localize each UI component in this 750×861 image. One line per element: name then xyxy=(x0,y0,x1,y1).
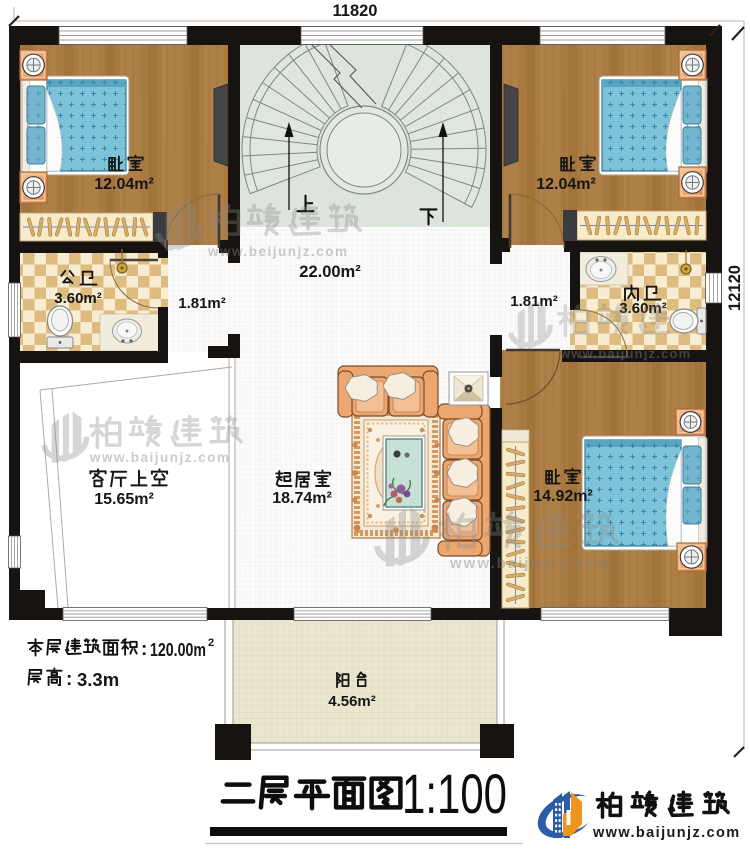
svg-text:1.81m²: 1.81m² xyxy=(178,295,226,312)
svg-text:12.04m²: 12.04m² xyxy=(94,176,154,193)
svg-text:www.baijunjz.com: www.baijunjz.com xyxy=(89,450,231,465)
svg-text:www.baijunjz.com: www.baijunjz.com xyxy=(559,346,691,361)
svg-text:1.81m²: 1.81m² xyxy=(510,293,558,310)
svg-text:120.00m: 120.00m xyxy=(150,639,206,660)
svg-text:www.baijunjz.com: www.baijunjz.com xyxy=(592,825,741,841)
svg-text::: : xyxy=(141,639,147,660)
svg-text:11820: 11820 xyxy=(333,2,378,20)
svg-text:22.00m²: 22.00m² xyxy=(299,263,361,281)
svg-text:12120: 12120 xyxy=(726,265,744,311)
svg-text:www.beijunjz.com: www.beijunjz.com xyxy=(207,244,349,259)
svg-text:3.60m²: 3.60m² xyxy=(54,290,102,307)
svg-text:4.56m²: 4.56m² xyxy=(328,693,376,710)
svg-text:2: 2 xyxy=(208,637,214,649)
svg-text:www.baijunjz.com: www.baijunjz.com xyxy=(449,555,611,572)
svg-text::: : xyxy=(66,669,72,690)
svg-text:3.3m: 3.3m xyxy=(77,669,119,690)
svg-text:1:100: 1:100 xyxy=(402,762,507,825)
svg-text:14.92m²: 14.92m² xyxy=(533,488,593,505)
svg-text:12.04m²: 12.04m² xyxy=(536,176,596,193)
svg-text:15.65m²: 15.65m² xyxy=(94,491,154,508)
svg-text:18.74m²: 18.74m² xyxy=(272,490,332,507)
